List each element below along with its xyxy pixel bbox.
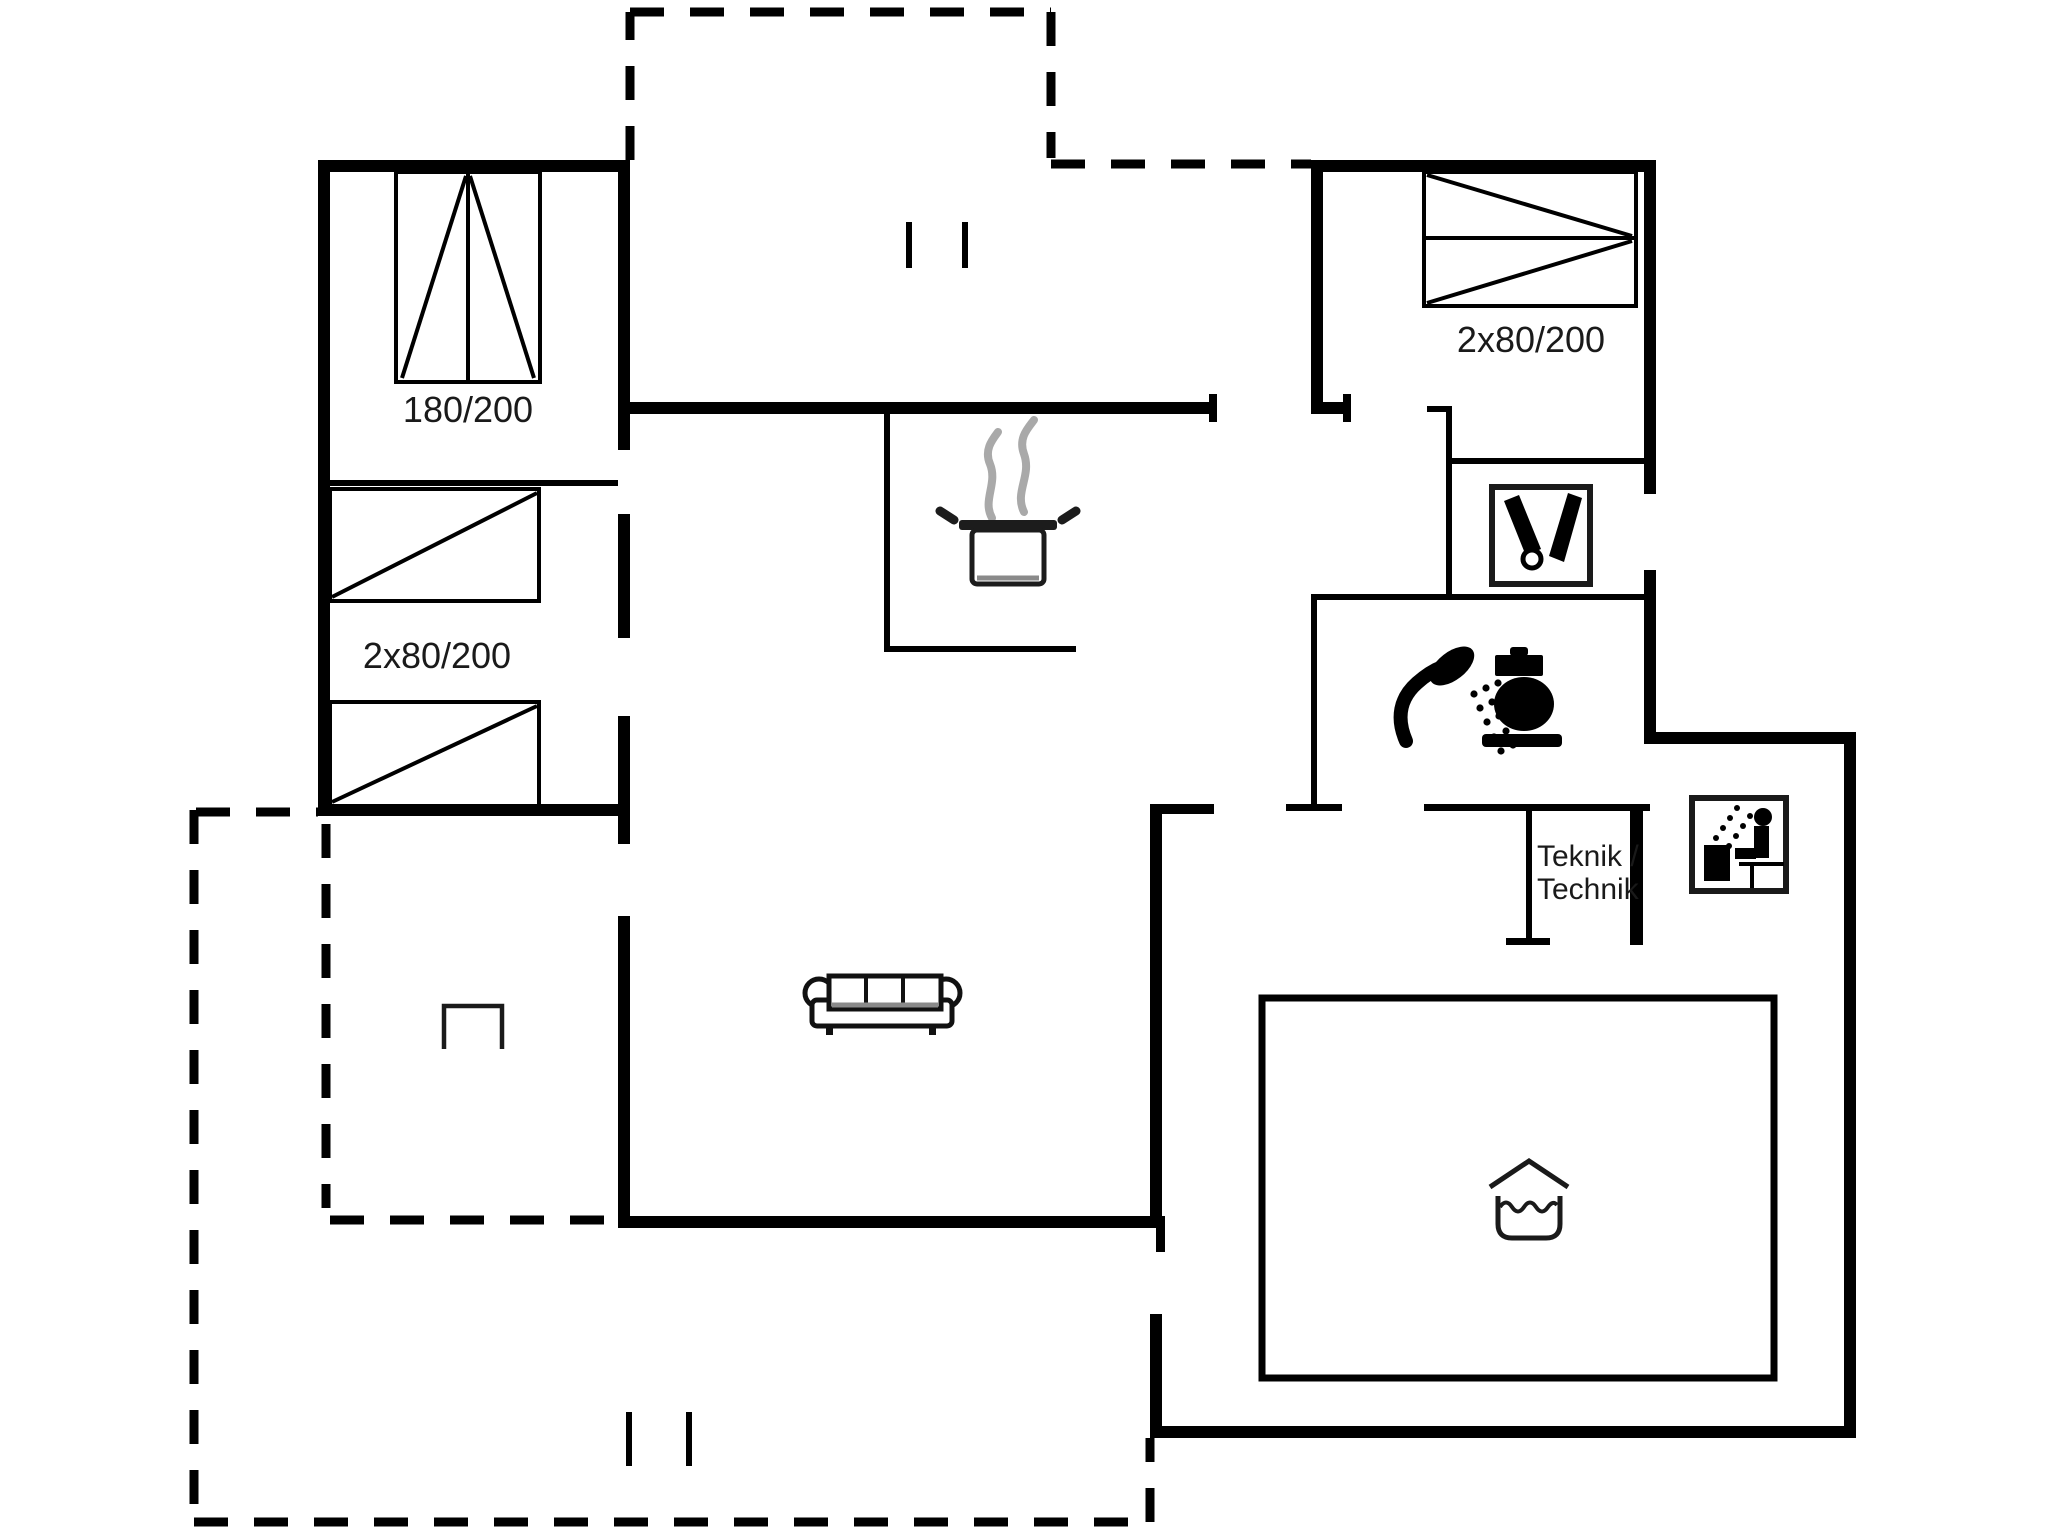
wall-end-tick-main — [1209, 394, 1217, 422]
wall-teknik-left-tick — [1506, 938, 1550, 945]
label-teknik-line2: Technik — [1537, 873, 1640, 906]
wall-hall-left — [1150, 804, 1162, 1228]
sauna-icon — [1692, 798, 1786, 891]
sauna-person-head — [1754, 808, 1772, 826]
wall-bedroom-divider — [329, 480, 618, 486]
wall-living-bottom-endtick — [1156, 1216, 1165, 1252]
wall-sinkroom-top — [1446, 458, 1650, 464]
label-teknik-line1: Teknik / — [1537, 840, 1639, 873]
toilet-bowl — [1494, 677, 1554, 731]
pool-basin-outline — [1262, 998, 1774, 1378]
pool-roof — [1490, 1161, 1568, 1187]
steam-icon — [988, 432, 998, 518]
wall-rightwing-left — [1311, 160, 1323, 414]
label-twin-bed-left: 2x80/200 — [363, 635, 511, 676]
label-double-bed: 180/200 — [403, 389, 533, 430]
wall-far-right-exterior — [1844, 732, 1856, 1438]
wall-bathroom-left — [1311, 594, 1317, 810]
pot-handle-icon — [1062, 511, 1076, 520]
label-twin-bed-right: 2x80/200 — [1457, 319, 1605, 360]
wall-corridor-mid — [618, 514, 630, 638]
toilet-icon — [1482, 647, 1562, 747]
wall-corridor-lower — [618, 716, 630, 808]
walls-thick — [318, 160, 1856, 1438]
wall-bathroom-left-tick — [1286, 804, 1342, 811]
floor-plan: 180/200 2x80/200 2x80/200 Teknik / Techn… — [0, 0, 2048, 1536]
wall-wing-inner-vertical — [1446, 406, 1452, 600]
toilet-base — [1482, 734, 1562, 747]
single-bed-icon — [330, 702, 539, 806]
double-bed-icon — [396, 172, 540, 382]
wall-stub-below-bedroom2 — [618, 804, 630, 844]
wall-poolroom-left — [1150, 1314, 1162, 1438]
sauna-stove — [1704, 845, 1730, 881]
pool-wave — [1500, 1203, 1557, 1212]
toilet-button — [1510, 647, 1528, 656]
wall-living-bottom — [618, 1216, 1164, 1228]
stove-pot-icon — [940, 420, 1076, 584]
sofa-icon — [805, 976, 960, 1035]
pot-handle-icon — [940, 511, 954, 520]
wall-widening-horizontal — [1644, 732, 1856, 744]
wall-teknik-left — [1526, 804, 1532, 944]
wall-bathroom-top — [1311, 594, 1650, 600]
indoor-pool-icon — [1490, 1161, 1568, 1238]
sink-drain — [1523, 550, 1541, 568]
utility-sink-icon — [1492, 487, 1590, 584]
toilet-tank — [1495, 655, 1543, 676]
terrace-marker-symbol — [444, 1006, 502, 1049]
single-bed-icon — [330, 489, 539, 601]
wall-main-horizontal — [618, 402, 1215, 414]
wall-right-exterior-upper — [1644, 160, 1656, 494]
twin-beds-icon — [1424, 172, 1636, 306]
sauna-person-legs — [1735, 848, 1756, 859]
steam-icon — [1021, 420, 1034, 512]
wall-poolroom-bottom — [1150, 1426, 1856, 1438]
wall-end-tick-entry — [1343, 394, 1351, 422]
wall-hall-left-toptick — [1150, 804, 1214, 814]
wall-living-left — [618, 916, 630, 1228]
wall-bathroom-bottom — [1424, 804, 1650, 811]
sauna-person-torso — [1754, 826, 1769, 858]
wall-kitchen-vertical — [884, 408, 890, 652]
wall-kitchen-horizontal — [884, 646, 1076, 652]
